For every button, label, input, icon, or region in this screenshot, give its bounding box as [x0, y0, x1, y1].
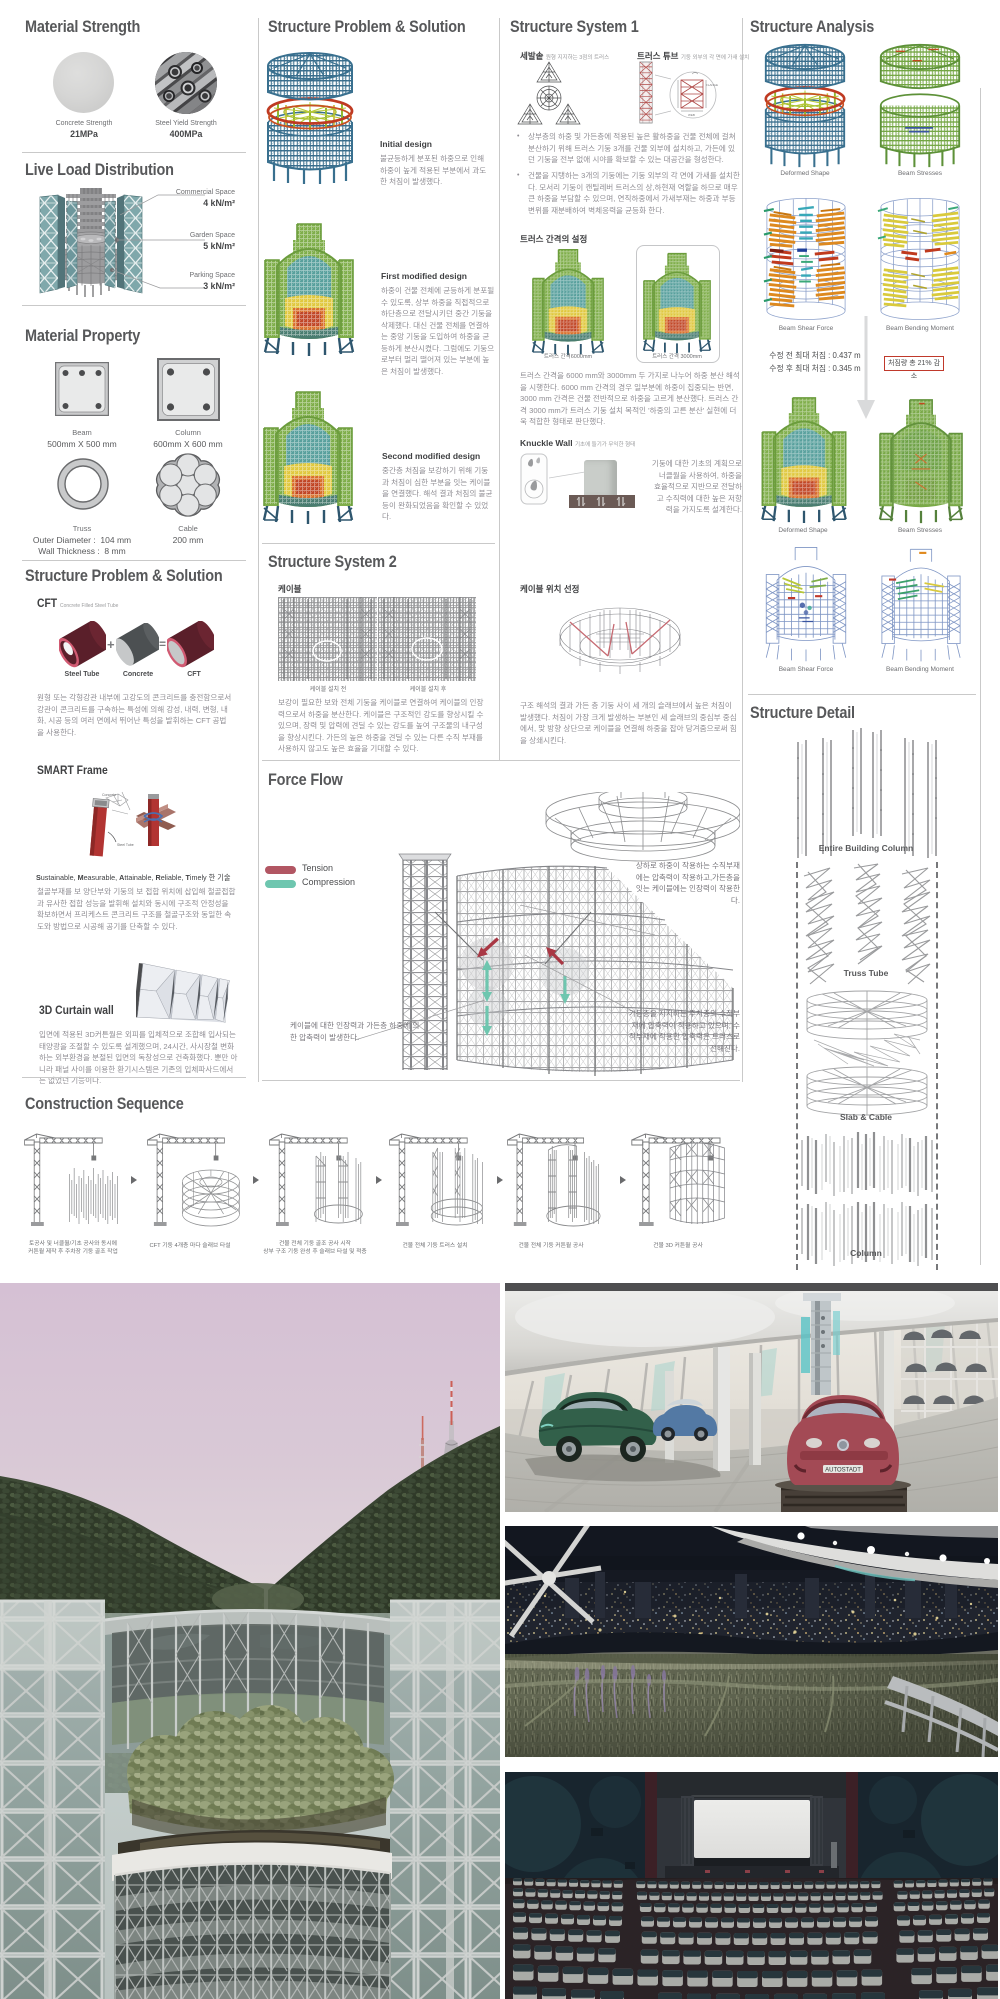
svg-text:Concrete: Concrete	[102, 793, 116, 797]
svg-text:Steel Tube: Steel Tube	[117, 843, 134, 847]
svg-text:FLANGE: FLANGE	[706, 83, 718, 87]
svg-text:AUTOSTADT: AUTOSTADT	[825, 1468, 861, 1474]
svg-text:WEB: WEB	[688, 113, 695, 117]
